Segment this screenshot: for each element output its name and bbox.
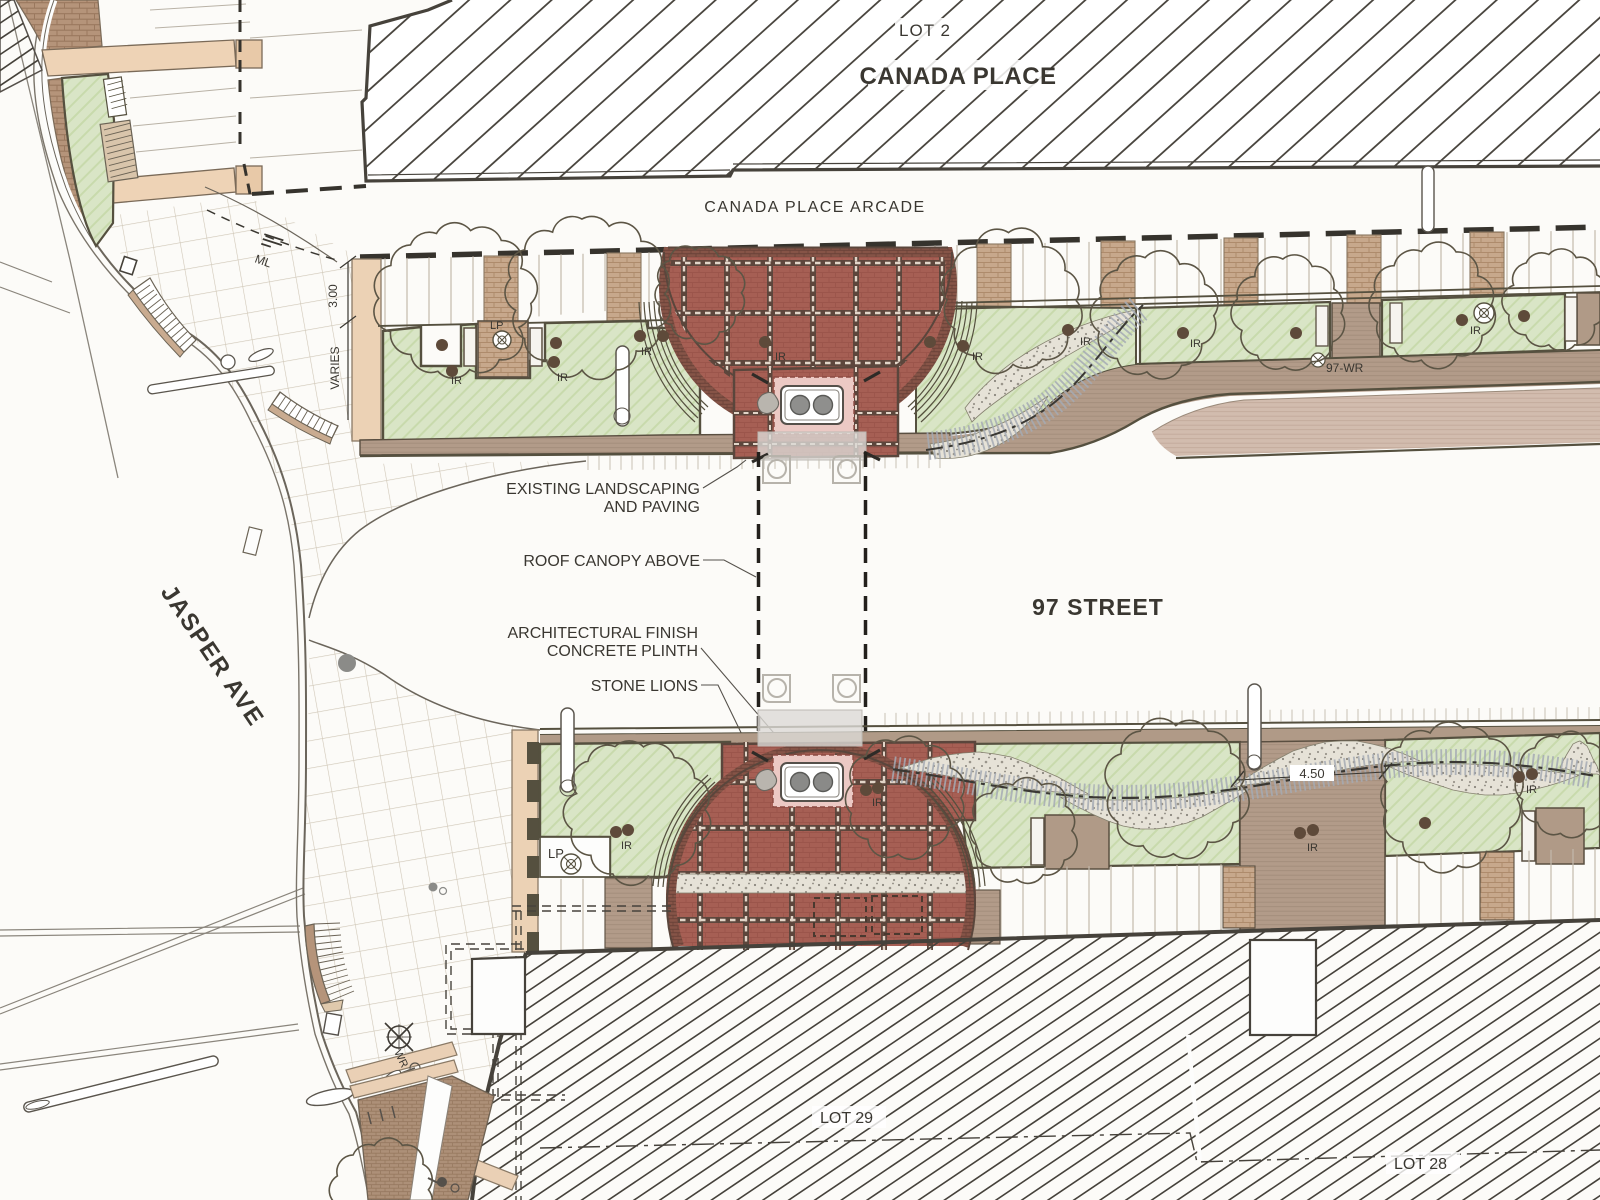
svg-text:LOT 28: LOT 28 — [1394, 1156, 1447, 1173]
svg-text:LOT 29: LOT 29 — [820, 1110, 873, 1127]
svg-text:3.00: 3.00 — [326, 284, 340, 308]
svg-text:CONCRETE PLINTH: CONCRETE PLINTH — [547, 643, 698, 660]
svg-text:EXISTING LANDSCAPING: EXISTING LANDSCAPING — [506, 481, 700, 498]
svg-text:CANADA PLACE: CANADA PLACE — [859, 63, 1056, 90]
svg-text:IR: IR — [1190, 338, 1201, 350]
svg-text:4.50: 4.50 — [1299, 766, 1324, 781]
svg-text:LP: LP — [548, 846, 564, 861]
svg-text:IR: IR — [621, 840, 632, 852]
svg-text:AND PAVING: AND PAVING — [604, 499, 700, 516]
svg-text:IR: IR — [1526, 784, 1537, 796]
svg-text:97-WR: 97-WR — [1326, 361, 1364, 375]
svg-text:LOT 2: LOT 2 — [899, 21, 951, 40]
svg-text:VARIES: VARIES — [328, 346, 342, 389]
svg-text:IR: IR — [775, 351, 786, 363]
svg-text:STONE LIONS: STONE LIONS — [591, 678, 698, 695]
svg-text:IR: IR — [1307, 842, 1318, 854]
svg-text:IR: IR — [972, 351, 983, 363]
svg-text:LP: LP — [490, 320, 503, 332]
svg-text:ARCHITECTURAL FINISH: ARCHITECTURAL FINISH — [507, 625, 698, 642]
svg-text:IR: IR — [557, 372, 568, 384]
svg-text:ROOF CANOPY ABOVE: ROOF CANOPY ABOVE — [523, 553, 700, 570]
svg-text:IR: IR — [872, 797, 883, 809]
svg-text:IR: IR — [1080, 336, 1091, 348]
svg-text:97 STREET: 97 STREET — [1032, 594, 1164, 620]
svg-text:IR: IR — [1470, 325, 1481, 337]
svg-text:CANADA PLACE ARCADE: CANADA PLACE ARCADE — [704, 199, 925, 216]
svg-text:IR: IR — [641, 346, 652, 358]
